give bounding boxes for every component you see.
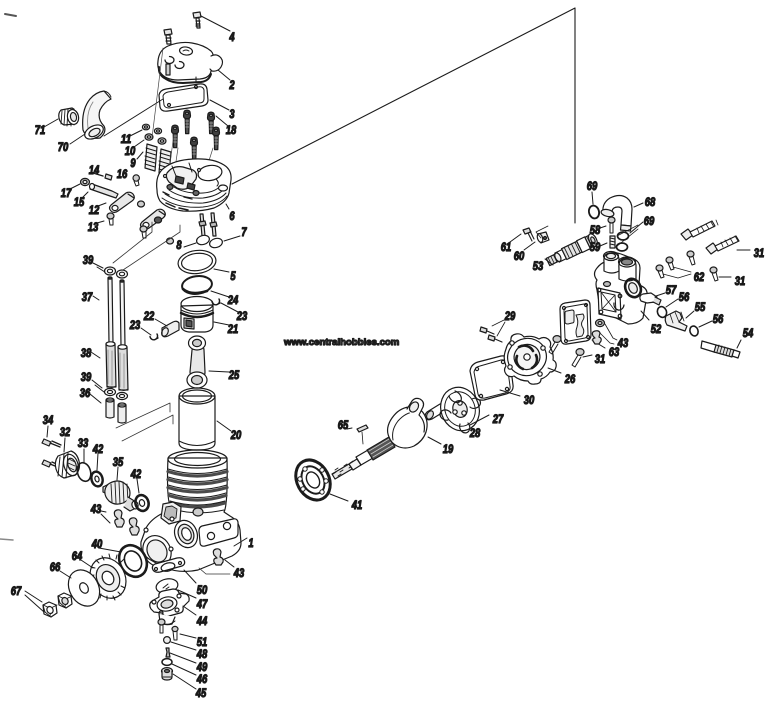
svg-text:58: 58	[590, 223, 601, 237]
svg-text:65: 65	[338, 418, 349, 432]
svg-text:18: 18	[226, 123, 237, 137]
svg-text:46: 46	[196, 672, 208, 686]
svg-text:56: 56	[679, 290, 690, 304]
svg-text:35: 35	[113, 455, 124, 469]
svg-text:40: 40	[91, 537, 103, 551]
svg-text:55: 55	[695, 300, 706, 314]
svg-text:7: 7	[241, 225, 247, 239]
svg-text:3: 3	[229, 107, 234, 121]
svg-text:37: 37	[82, 290, 94, 304]
svg-text:1: 1	[248, 536, 253, 550]
svg-text:30: 30	[524, 393, 535, 407]
svg-text:14: 14	[89, 163, 100, 177]
svg-text:43: 43	[617, 336, 629, 350]
svg-text:69: 69	[644, 214, 655, 228]
svg-text:38: 38	[81, 346, 92, 360]
svg-text:71: 71	[35, 123, 46, 137]
svg-text:19: 19	[443, 442, 454, 456]
svg-text:6: 6	[229, 209, 234, 223]
svg-text:9: 9	[130, 156, 135, 170]
svg-text:44: 44	[196, 614, 208, 628]
svg-text:43: 43	[233, 566, 245, 580]
svg-text:2: 2	[229, 78, 235, 92]
svg-text:39: 39	[81, 370, 92, 384]
svg-text:31: 31	[735, 274, 746, 288]
svg-text:41: 41	[351, 498, 363, 512]
svg-text:45: 45	[195, 686, 207, 700]
svg-text:70: 70	[58, 140, 69, 154]
svg-text:12: 12	[89, 203, 100, 217]
svg-text:17: 17	[61, 186, 73, 200]
svg-text:68: 68	[645, 195, 656, 209]
svg-text:59: 59	[590, 240, 601, 254]
svg-text:31: 31	[595, 352, 606, 366]
svg-text:20: 20	[230, 428, 242, 442]
svg-text:52: 52	[651, 322, 662, 336]
svg-text:64: 64	[72, 549, 83, 563]
svg-text:29: 29	[504, 309, 516, 323]
svg-text:15: 15	[74, 195, 85, 209]
svg-text:67: 67	[11, 584, 23, 598]
svg-text:13: 13	[88, 220, 99, 234]
svg-text:43: 43	[90, 502, 102, 516]
svg-text:31: 31	[754, 246, 765, 260]
svg-text:4: 4	[229, 30, 235, 44]
svg-text:www.centralhobbies.com: www.centralhobbies.com	[283, 337, 399, 348]
svg-text:57: 57	[666, 283, 678, 297]
svg-text:66: 66	[50, 560, 61, 574]
svg-text:21: 21	[227, 322, 239, 336]
svg-text:42: 42	[92, 442, 104, 456]
svg-text:53: 53	[533, 259, 544, 273]
svg-text:8: 8	[176, 238, 181, 252]
svg-text:27: 27	[492, 412, 504, 426]
svg-text:25: 25	[228, 368, 240, 382]
svg-text:36: 36	[80, 386, 91, 400]
svg-text:23: 23	[236, 309, 248, 323]
svg-text:22: 22	[143, 309, 155, 323]
svg-text:47: 47	[196, 597, 208, 611]
svg-text:16: 16	[117, 167, 128, 181]
svg-text:62: 62	[694, 270, 705, 284]
svg-text:24: 24	[227, 293, 239, 307]
svg-text:56: 56	[713, 312, 724, 326]
svg-text:42: 42	[130, 467, 142, 481]
svg-text:48: 48	[196, 647, 208, 661]
svg-text:23: 23	[129, 318, 141, 332]
svg-text:69: 69	[587, 179, 598, 193]
svg-text:5: 5	[230, 269, 235, 283]
svg-text:50: 50	[197, 583, 208, 597]
svg-text:32: 32	[60, 425, 71, 439]
svg-text:54: 54	[743, 326, 754, 340]
svg-text:61: 61	[501, 240, 512, 254]
svg-text:34: 34	[43, 413, 54, 427]
svg-text:60: 60	[514, 249, 525, 263]
svg-text:26: 26	[564, 372, 576, 386]
svg-text:39: 39	[83, 253, 94, 267]
svg-text:33: 33	[78, 436, 89, 450]
